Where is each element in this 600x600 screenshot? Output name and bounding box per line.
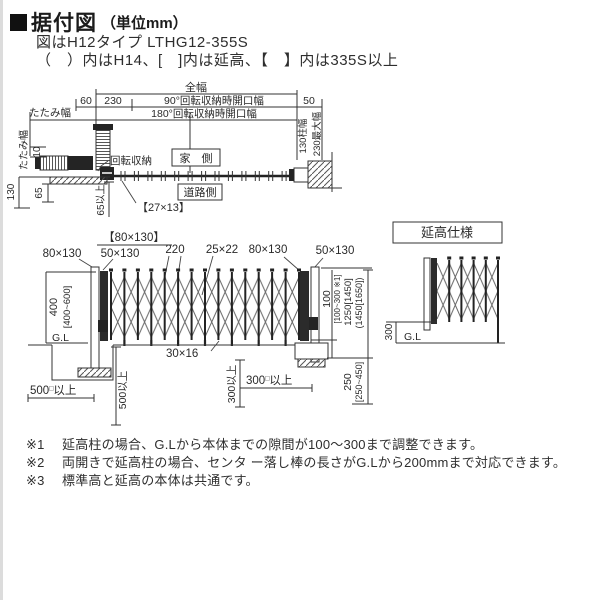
folded-gate-180deg bbox=[40, 156, 68, 170]
footnote-1-text: 延高柱の場合、G.Lから本体までの隙間が100～300まで調整できます。 bbox=[62, 437, 483, 452]
folded-gate-90deg bbox=[96, 130, 110, 170]
mini-gate-post bbox=[431, 258, 437, 324]
footnote-3-text: 標準高と延高の本体は共通です。 bbox=[62, 473, 259, 488]
left-support-post bbox=[91, 267, 99, 368]
dim-27x13: 【27×13】 bbox=[137, 201, 190, 214]
dim-250: 250 bbox=[342, 373, 354, 391]
dim-100: 100 bbox=[321, 290, 333, 308]
mini-lattice bbox=[437, 263, 498, 319]
right-gate-post bbox=[300, 271, 309, 341]
technical-drawing: 全幅 60 230 90°回転収納時開口幅 50 180°回転収納時開口幅 たた… bbox=[0, 75, 600, 430]
dim-1450: (1450[1650]) bbox=[354, 277, 364, 328]
plan-ground-hatch bbox=[50, 177, 107, 184]
plan-view: 全幅 60 230 90°回転収納時開口幅 50 180°回転収納時開口幅 たた… bbox=[6, 80, 342, 217]
footnote-3-mark: ※3 bbox=[26, 473, 62, 489]
gl-label-left: G.L bbox=[52, 332, 69, 344]
dim-10: 10 bbox=[32, 146, 43, 158]
leader-50x130-left bbox=[103, 259, 113, 270]
extended-height-view: 延高仕様 G.L 300 bbox=[384, 222, 505, 343]
leader-80x130-left bbox=[79, 259, 92, 267]
plan-right-post-cap bbox=[289, 169, 295, 181]
dim-65-min: 65以上 bbox=[95, 184, 107, 215]
right-footing-hatch bbox=[298, 359, 325, 367]
dim-300-square-min: 300□以上 bbox=[246, 374, 292, 387]
mini-support-post bbox=[424, 258, 430, 330]
house-side-label: 家 側 bbox=[180, 151, 213, 165]
folded-width-label-v: たたみ幅 bbox=[17, 130, 30, 170]
elevation-view: 80×130 【80×130】 50×130 220 25×22 80×130 … bbox=[28, 231, 373, 425]
right-post-bracket bbox=[309, 317, 318, 330]
dim-80x130-right: 80×130 bbox=[249, 244, 288, 256]
dim-180deg-opening: 180°回転収納時開口幅 bbox=[151, 107, 257, 120]
dim-130: 130 bbox=[6, 183, 17, 200]
dim-total-width-label: 全幅 bbox=[185, 80, 207, 94]
dim-60: 60 bbox=[80, 95, 92, 107]
dim-500-depth-min: 500以上 bbox=[117, 371, 129, 410]
gl-label-mini: G.L bbox=[404, 331, 421, 343]
dim-250-range: [250~450] bbox=[354, 362, 364, 402]
footnote-2-text: 両開きで延高柱の場合、センタ ー落し棒の長さがG.Lから200mmまで対応できま… bbox=[62, 455, 566, 470]
rotation-storage-label: 回転収納 bbox=[110, 154, 152, 167]
bracket-legend-note: （ ）内はH14、[ ]内は延高、【 】内は335S以上 bbox=[36, 49, 398, 70]
post-width-label: 130柱幅 bbox=[297, 118, 309, 153]
title-square-icon bbox=[10, 14, 27, 31]
footnote-1-mark: ※1 bbox=[26, 437, 62, 453]
unit-label: （単位mm） bbox=[101, 12, 188, 33]
dim-80x130-left: 80×130 bbox=[43, 248, 82, 260]
dim-100-range: [100~300 ※1] bbox=[333, 274, 342, 323]
dim-1250: 1250[1450] bbox=[343, 278, 354, 326]
dim-400: 400 bbox=[48, 298, 60, 316]
footnote-3: ※3標準高と延高の本体は共通です。 bbox=[26, 470, 259, 489]
installation-drawing-page: 据付図 （単位mm） 図はH12タイプ LTHG12-355S （ ）内はH14… bbox=[0, 0, 600, 600]
dim-300-mini: 300 bbox=[384, 323, 395, 340]
folded-gate-180-cap bbox=[35, 157, 41, 169]
plan-wall-hatch bbox=[308, 161, 332, 188]
folded-gate-180deg-dark bbox=[68, 156, 93, 170]
folded-width-label-h: たたみ幅 bbox=[29, 106, 71, 119]
dim-500-square-min: 500□以上 bbox=[30, 384, 76, 397]
right-footing-outline bbox=[295, 343, 328, 359]
dim-50x130-left: 50×130 bbox=[101, 248, 140, 260]
footnote-2-mark: ※2 bbox=[26, 455, 62, 471]
dim-ext-80x130: 【80×130】 bbox=[103, 231, 165, 244]
max-width-label: 230最大幅 bbox=[311, 111, 323, 156]
dim-25x22: 25×22 bbox=[206, 244, 238, 256]
dim-30x16: 30×16 bbox=[166, 348, 198, 360]
dim-400-range: [400~600] bbox=[62, 286, 73, 329]
dim-90deg-opening: 90°回転収納時開口幅 bbox=[164, 94, 264, 107]
left-footing-hatch bbox=[78, 368, 111, 377]
dim-65: 65 bbox=[34, 187, 45, 199]
dim-50: 50 bbox=[303, 95, 315, 107]
dim-220: 220 bbox=[165, 244, 184, 256]
dim-50x130-right: 50×130 bbox=[316, 245, 355, 257]
dim-27x13-leader bbox=[122, 181, 136, 203]
left-post-bracket bbox=[98, 320, 108, 332]
dim-300-depth-min: 300以上 bbox=[226, 365, 238, 404]
road-side-label: 道路側 bbox=[184, 185, 217, 199]
folded-gate-cap bbox=[93, 124, 113, 130]
extended-height-title: 延高仕様 bbox=[421, 225, 473, 240]
footnote-2: ※2両開きで延高柱の場合、センタ ー落し棒の長さがG.Lから200mmまで対応で… bbox=[26, 452, 566, 471]
plan-right-post bbox=[294, 168, 308, 182]
leader-30x16 bbox=[211, 341, 219, 351]
footnote-1: ※1延高柱の場合、G.Lから本体までの隙間が100～300まで調整できます。 bbox=[26, 434, 483, 453]
dim-230: 230 bbox=[104, 95, 122, 107]
